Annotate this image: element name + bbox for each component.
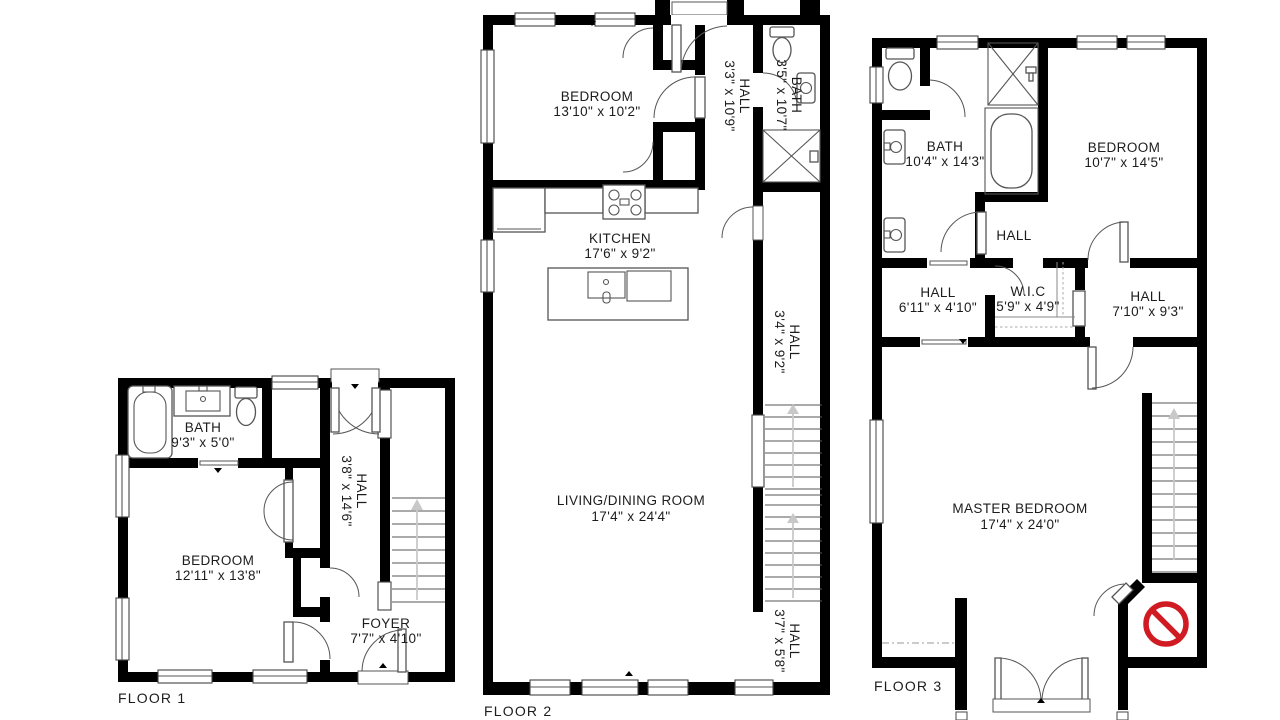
floor1-hall-dims: 3'8" x 14'6" — [339, 455, 354, 526]
floor1-foyer-label: FOYER — [362, 616, 411, 631]
floor3-windows — [870, 36, 1165, 523]
floor2-bedroom-label: BEDROOM — [561, 89, 634, 104]
floor2-bath-label: BATH — [789, 77, 804, 114]
floor3-hall-left-dims: 6'11" x 4'10" — [899, 300, 977, 315]
shower-icon — [763, 130, 820, 182]
sink-icon — [884, 218, 905, 252]
floor1-plan: BATH 9'3" x 5'0" BEDROOM 12'11" x 13'8" … — [116, 369, 455, 706]
floor1-bedroom-dims: 12'11" x 13'8" — [175, 568, 261, 583]
floor3-hall-left-label: HALL — [920, 285, 955, 300]
floor2-hall-middle-dims: 3'4" x 9'2" — [772, 310, 787, 373]
floor2-kitchen-dims: 17'6" x 9'2" — [584, 246, 655, 261]
kitchen-island — [548, 268, 688, 320]
floor3-master-dims: 17'4" x 24'0" — [980, 517, 1059, 532]
floor2-title: FLOOR 2 — [484, 703, 552, 719]
bathtub-icon — [985, 108, 1038, 194]
toilet-icon — [235, 387, 257, 426]
floor2-living-dims: 17'4" x 24'4" — [591, 509, 670, 524]
floor1-foyer-dims: 7'7" x 4'10" — [350, 631, 421, 646]
floor2-hall-middle-label: HALL — [787, 324, 802, 359]
floor3-hall-small-label: HALL — [996, 228, 1031, 243]
floor2-bath-dims: 3'5" x 10'7" — [774, 59, 789, 130]
kitchen-counter — [493, 188, 698, 232]
floor2-ticks — [588, 21, 633, 676]
floor3-master-label: MASTER BEDROOM — [952, 501, 1087, 516]
floor2-bedroom-dims: 13'10" x 10'2" — [553, 104, 640, 119]
floor3-stairs — [1152, 403, 1197, 572]
floor3-wic-label: W.I.C — [1011, 284, 1046, 299]
bathtub-icon — [128, 386, 172, 458]
stairs-up-arrow-icon — [787, 404, 799, 487]
floor1-bath-dims: 9'3" x 5'0" — [171, 435, 234, 450]
floor2-hall-lower-dims: 3'7" x 5'8" — [772, 609, 787, 672]
floor2-plan: BEDROOM 13'10" x 10'2" HALL 3'3" x 10'9"… — [481, 0, 830, 719]
floor2-hall-upper-dims: 3'3" x 10'9" — [722, 60, 737, 131]
floor3-bath-dims: 10'4" x 14'3" — [905, 154, 984, 169]
floor3-bath-label: BATH — [927, 139, 964, 154]
floor3-bedroom-label: BEDROOM — [1088, 140, 1161, 155]
floor-plan-canvas: BATH 9'3" x 5'0" BEDROOM 12'11" x 13'8" … — [0, 0, 1280, 720]
floor2-kitchen-label: KITCHEN — [589, 231, 651, 246]
floor3-plan: BATH 10'4" x 14'3" BEDROOM 10'7" x 14'5"… — [870, 36, 1207, 720]
floor3-labels: BATH 10'4" x 14'3" BEDROOM 10'7" x 14'5"… — [874, 139, 1184, 694]
toilet-icon — [886, 48, 914, 90]
floor1-title: FLOOR 1 — [118, 690, 186, 706]
floor3-bedroom-dims: 10'7" x 14'5" — [1084, 155, 1163, 170]
floor2-living-label: LIVING/DINING ROOM — [557, 493, 705, 508]
floor1-bedroom-label: BEDROOM — [182, 553, 255, 568]
floor2-hall-lower-label: HALL — [787, 623, 802, 658]
floor2-stairs — [765, 404, 822, 601]
stairs-up-arrow-icon — [787, 513, 799, 598]
sink-icon — [884, 130, 905, 164]
shower-icon — [988, 43, 1038, 105]
no-entry-icon — [1146, 604, 1186, 644]
floor1-hall-label: HALL — [354, 473, 369, 508]
sink-vanity-icon — [174, 386, 230, 416]
floor1-stairs — [392, 498, 445, 602]
floor1-bath-label: BATH — [185, 420, 222, 435]
floor3-wic-dims: 5'9" x 4'9" — [996, 299, 1059, 314]
french-doors — [993, 658, 1090, 712]
stove-icon — [603, 185, 645, 219]
floor1-entry-door — [331, 369, 380, 434]
floor2-hall-upper-label: HALL — [737, 78, 752, 113]
floor3-hall-right-label: HALL — [1130, 289, 1165, 304]
floor3-title: FLOOR 3 — [874, 678, 942, 694]
toilet-icon — [770, 27, 794, 63]
stairs-up-arrow-icon — [1168, 408, 1180, 560]
floor3-hall-right-dims: 7'10" x 9'3" — [1112, 304, 1183, 319]
